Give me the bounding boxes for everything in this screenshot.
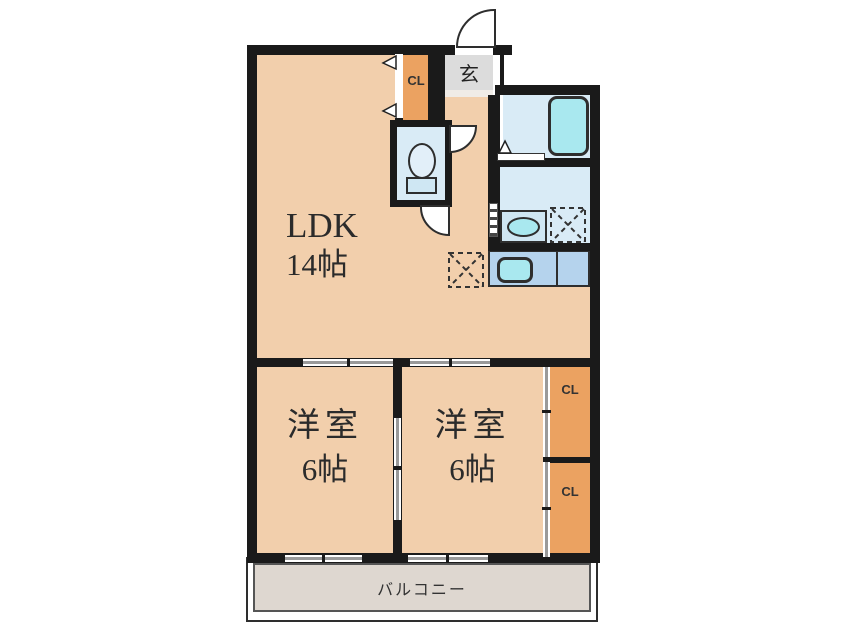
closet-entrance-label: CL xyxy=(407,72,425,89)
ldk-size: 14帖 xyxy=(286,246,358,284)
bathroom-door xyxy=(497,153,545,161)
ldk-label: LDK 14帖 xyxy=(286,206,358,284)
bathtub xyxy=(548,96,589,156)
entrance-step xyxy=(445,90,493,97)
toilet xyxy=(406,177,437,194)
closet-door-arrow-icon xyxy=(383,56,397,70)
ldk-name: LDK xyxy=(286,206,358,246)
hallway-door-swing-icon xyxy=(420,205,450,236)
bedroom-left-size: 6帖 xyxy=(257,449,393,491)
washbasin-bowl xyxy=(507,217,540,237)
wall-right xyxy=(590,85,600,563)
wall-bath-top xyxy=(495,85,600,95)
kitchen-counter-divider xyxy=(556,251,558,286)
wall-entrance-side xyxy=(500,55,504,87)
floor-plan: LDK 14帖 洋室 6帖 洋室 6帖 玄 CL CL CL バルコニー xyxy=(0,0,846,634)
closet-upper-right-label: CL xyxy=(561,381,579,398)
closet-lower-right-label: CL xyxy=(561,483,579,500)
bedroom-right-name: 洋室 xyxy=(402,403,543,449)
bedroom-right-size: 6帖 xyxy=(402,449,543,491)
wall-washroom-kitchen xyxy=(488,243,600,251)
kitchen-sink xyxy=(497,257,533,283)
entrance-door-swing-icon xyxy=(455,8,497,48)
entrance-label: 玄 xyxy=(445,55,493,90)
closet-door-arrow-icon xyxy=(383,104,397,118)
washing-machine-space-icon xyxy=(549,206,587,244)
bathroom-door-fold-icon xyxy=(499,141,512,154)
wall-closet-hall xyxy=(428,45,445,127)
toilet-door-swing-icon xyxy=(449,125,477,153)
bedroom-left-label: 洋室 6帖 xyxy=(257,403,393,491)
bedroom-left-name: 洋室 xyxy=(257,403,393,449)
refrigerator-space-icon xyxy=(447,251,485,289)
wall-top-left xyxy=(247,45,455,55)
bedroom-right-label: 洋室 6帖 xyxy=(402,403,543,491)
wall-between-closets xyxy=(543,457,600,463)
washroom-door xyxy=(489,203,498,237)
closet-lower-right xyxy=(550,462,590,557)
toilet-bowl xyxy=(408,143,436,179)
wall-left xyxy=(247,45,257,563)
balcony-label: バルコニー xyxy=(253,563,591,612)
